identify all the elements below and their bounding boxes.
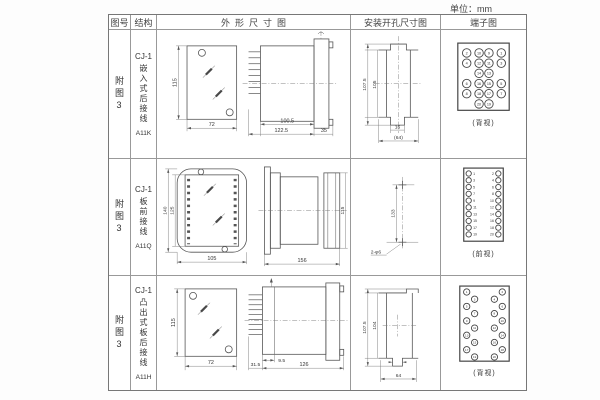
terminal-number: 19 <box>472 355 476 359</box>
mounting-drawing-a11k: 107.5 105 16 (64) <box>351 30 440 158</box>
terminal-number: 20 <box>490 233 494 237</box>
terminal-number: 11 <box>473 206 477 210</box>
terminal-circle <box>495 205 500 210</box>
terminal-circle <box>466 218 471 223</box>
dim-width: 105 <box>207 256 216 262</box>
front-view: 115 72 <box>173 46 237 131</box>
terminal-number: 18 <box>490 226 494 230</box>
terminal-number: 2 <box>491 172 493 176</box>
dim-overall-w: 64 <box>396 373 402 379</box>
terminal-number: 7 <box>500 92 502 96</box>
terminal-number: 11 <box>473 326 476 330</box>
terminal-number: 12 <box>492 326 496 330</box>
mounting-cell-row1: 107.5 105 16 (64) <box>351 30 441 159</box>
structure-cell-row1: CJ-1 嵌入式后接线 A11K <box>131 30 157 159</box>
figure-label: 附图3 <box>113 315 126 352</box>
terminal-number: 15 <box>473 219 477 223</box>
terminal-circle <box>466 205 471 210</box>
outline-drawing-a11h: 115 72 <box>157 277 350 390</box>
dim-flange: 35 <box>321 128 327 134</box>
dim-height: 115 <box>173 78 179 87</box>
terminal-number: 7 <box>473 311 475 315</box>
terminal-number: 17 <box>473 226 477 230</box>
terminal-number: 10 <box>476 51 480 55</box>
terminal-number: 6 <box>465 82 467 86</box>
dim-depth: 156 <box>298 258 307 264</box>
terminal-number: 6 <box>491 185 493 189</box>
terminal-number: 3 <box>500 62 502 66</box>
terminal-caption: (背视) <box>472 118 494 127</box>
dim-hole-spacing: 133 <box>391 209 397 217</box>
terminal-circle <box>495 225 500 230</box>
terminal-diagram-a11k: (背视) 2109141211314136161558181772019 <box>442 30 526 158</box>
terminal-circle <box>495 198 500 203</box>
mounting-drawing-a11q: 133 2-φ6 <box>351 159 440 275</box>
structure-code: A11Q <box>135 243 151 250</box>
terminal-caption: (前视) <box>472 249 494 258</box>
terminal-circle <box>495 178 500 183</box>
structure-desc: 板前接线 <box>138 197 149 237</box>
terminal-circle <box>466 184 471 189</box>
terminal-circle <box>495 218 500 223</box>
mounting-drawing-a11h: 107.5 104 64 <box>351 277 440 390</box>
terminal-number: 5 <box>465 304 467 308</box>
terminal-cell-row3: (背视) 1234567891011121314151617181920 <box>441 276 526 390</box>
cutout-outline: 107.5 104 64 <box>362 289 418 382</box>
terminal-number: 14 <box>500 333 504 337</box>
terminal-number: 8 <box>465 92 467 96</box>
dim-rear-h: 115 <box>340 206 346 214</box>
outline-cell-row3: 115 72 <box>157 276 351 390</box>
terminal-number: 19 <box>473 233 477 237</box>
terminal-cell-row2: (前视) 1234567891011121314151617181920 <box>441 159 526 276</box>
model-label: CJ-1 <box>135 52 152 61</box>
terminal-number: 4 <box>493 297 495 301</box>
terminal-number: 16 <box>492 340 496 344</box>
dim-width: 72 <box>208 360 214 366</box>
structure-cell-row2: CJ-1 板前接线 A11Q <box>131 159 157 276</box>
outline-cell-row1: 115 72 <box>157 30 351 159</box>
terminal-number: 18 <box>476 92 480 96</box>
terminal-number: 16 <box>476 82 480 86</box>
mounting-cell-row2: 133 2-φ6 <box>351 159 441 276</box>
terminal-number: 3 <box>473 297 475 301</box>
terminal-circle <box>495 191 500 196</box>
terminal-number: 13 <box>486 72 490 76</box>
header-outline-dims: 外形尺寸图 <box>157 15 351 30</box>
terminal-circle <box>495 232 500 237</box>
terminal-number: 15 <box>472 340 476 344</box>
terminal-number: 1 <box>473 172 475 176</box>
header-figure-no: 图号 <box>109 15 131 30</box>
model-label: CJ-1 <box>135 185 152 194</box>
front-view: 140 125 105 <box>162 169 246 264</box>
structure-code: A11H <box>136 374 152 381</box>
terminal-circle <box>466 171 471 176</box>
terminal-number: 1 <box>500 51 502 55</box>
terminal-number: 16 <box>490 219 494 223</box>
header-mounting-dims: 安装开孔尺寸图 <box>351 15 441 30</box>
outline-drawing-a11q: 140 125 105 115 <box>157 159 350 275</box>
terminal-number: 3 <box>473 179 475 183</box>
terminal-circle <box>466 232 471 237</box>
terminal-number: 15 <box>486 82 490 86</box>
figure-label: 附图3 <box>113 199 126 236</box>
figure-cell-row3: 附图3 <box>109 276 131 390</box>
side-view: 100.5 122.5 35 <box>243 31 338 136</box>
terminal-number: 10 <box>500 318 504 322</box>
header-structure: 结构 <box>131 15 157 30</box>
model-label: CJ-1 <box>135 286 152 295</box>
terminal-number: 11 <box>486 62 490 66</box>
terminal-diagram-a11q: (前视) 1234567891011121314151617181920 <box>442 159 526 275</box>
terminal-number: 10 <box>490 199 494 203</box>
terminal-number: 5 <box>500 82 502 86</box>
dim-offset: 9.5 <box>278 358 285 364</box>
spec-table: 图号 结构 外形尺寸图 安装开孔尺寸图 端子图 附图3 CJ-1 嵌入式后接线 … <box>108 14 527 391</box>
terminal-number: 17 <box>486 92 490 96</box>
dim-inner-h: 125 <box>170 206 176 214</box>
terminal-number: 18 <box>500 347 504 351</box>
outline-drawing-a11k: 115 72 <box>157 30 350 158</box>
terminal-number: 2 <box>465 51 467 55</box>
terminal-number: 12 <box>476 62 480 66</box>
terminal-number: 7 <box>473 192 475 196</box>
structure-desc: 凸出式板后接线 <box>138 298 149 368</box>
terminal-number: 5 <box>473 185 475 189</box>
terminal-number: 19 <box>486 102 490 106</box>
outline-cell-row2: 140 125 105 115 <box>157 159 351 276</box>
dim-inner-h: 105 <box>372 80 378 88</box>
structure-cell-row3: CJ-1 凸出式板后接线 A11H <box>131 276 157 390</box>
dim-overall-w: (64) <box>394 135 403 141</box>
terminal-number: 9 <box>487 51 489 55</box>
mounting-cell-row3: 107.5 104 64 <box>351 276 441 390</box>
terminal-diagram-a11h: (背视) 1234567891011121314151617181920 <box>442 277 526 390</box>
terminal-number: 12 <box>490 206 494 210</box>
terminal-number: 13 <box>465 333 469 337</box>
side-view: 9.5 31.5 126 <box>245 277 348 369</box>
terminal-circle <box>495 211 500 216</box>
dim-height: 115 <box>171 318 177 327</box>
terminal-number: 8 <box>491 192 493 196</box>
dim-width: 72 <box>209 122 215 128</box>
dim-pin: 31.5 <box>251 362 261 368</box>
figure-cell-row1: 附图3 <box>109 30 131 159</box>
terminal-circle <box>466 191 471 196</box>
terminal-circle <box>466 211 471 216</box>
figure-cell-row2: 附图3 <box>109 159 131 276</box>
terminal-number: 14 <box>490 212 494 216</box>
dim-slot: 16 <box>395 125 401 131</box>
hole-callout: 2-φ6 <box>371 250 382 256</box>
front-view: 115 72 <box>171 288 236 369</box>
structure-code: A11K <box>136 130 151 137</box>
terminal-number: 4 <box>465 62 467 66</box>
terminal-cell-row1: (背视) 2109141211314136161558181772019 <box>441 30 526 159</box>
dim-overall: 122.5 <box>274 128 288 134</box>
terminal-number: 14 <box>476 72 480 76</box>
terminal-circle <box>495 184 500 189</box>
terminal-number: 1 <box>465 290 467 294</box>
terminal-circle <box>466 225 471 230</box>
dim-outer-h: 107.5 <box>362 78 368 91</box>
terminal-number: 4 <box>491 179 493 183</box>
dim-body: 100.5 <box>280 118 294 124</box>
terminal-number: 17 <box>465 347 469 351</box>
terminal-number: 20 <box>492 355 496 359</box>
structure-desc: 嵌入式后接线 <box>138 64 149 124</box>
hole-layout: 133 2-φ6 <box>371 177 418 256</box>
terminal-number: 2 <box>501 290 503 294</box>
figure-label: 附图3 <box>113 76 126 113</box>
dim-outer-h: 107.5 <box>362 321 368 334</box>
dim-depth: 126 <box>300 362 309 368</box>
terminal-circle <box>495 171 500 176</box>
terminal-caption: (背视) <box>473 368 495 377</box>
terminal-number: 6 <box>501 304 503 308</box>
terminal-circle <box>466 178 471 183</box>
side-view: 115 156 <box>258 167 347 266</box>
terminal-number: 8 <box>493 311 495 315</box>
terminal-circle <box>466 198 471 203</box>
header-terminal: 端子图 <box>441 15 526 30</box>
cutout-outline: 107.5 105 16 (64) <box>362 36 422 143</box>
terminal-number: 20 <box>476 102 480 106</box>
terminal-number: 9 <box>473 199 475 203</box>
terminal-number: 9 <box>465 318 467 322</box>
dim-outer-h: 140 <box>162 206 168 214</box>
terminal-number: 13 <box>473 212 477 216</box>
dim-inner-h: 104 <box>372 321 378 329</box>
